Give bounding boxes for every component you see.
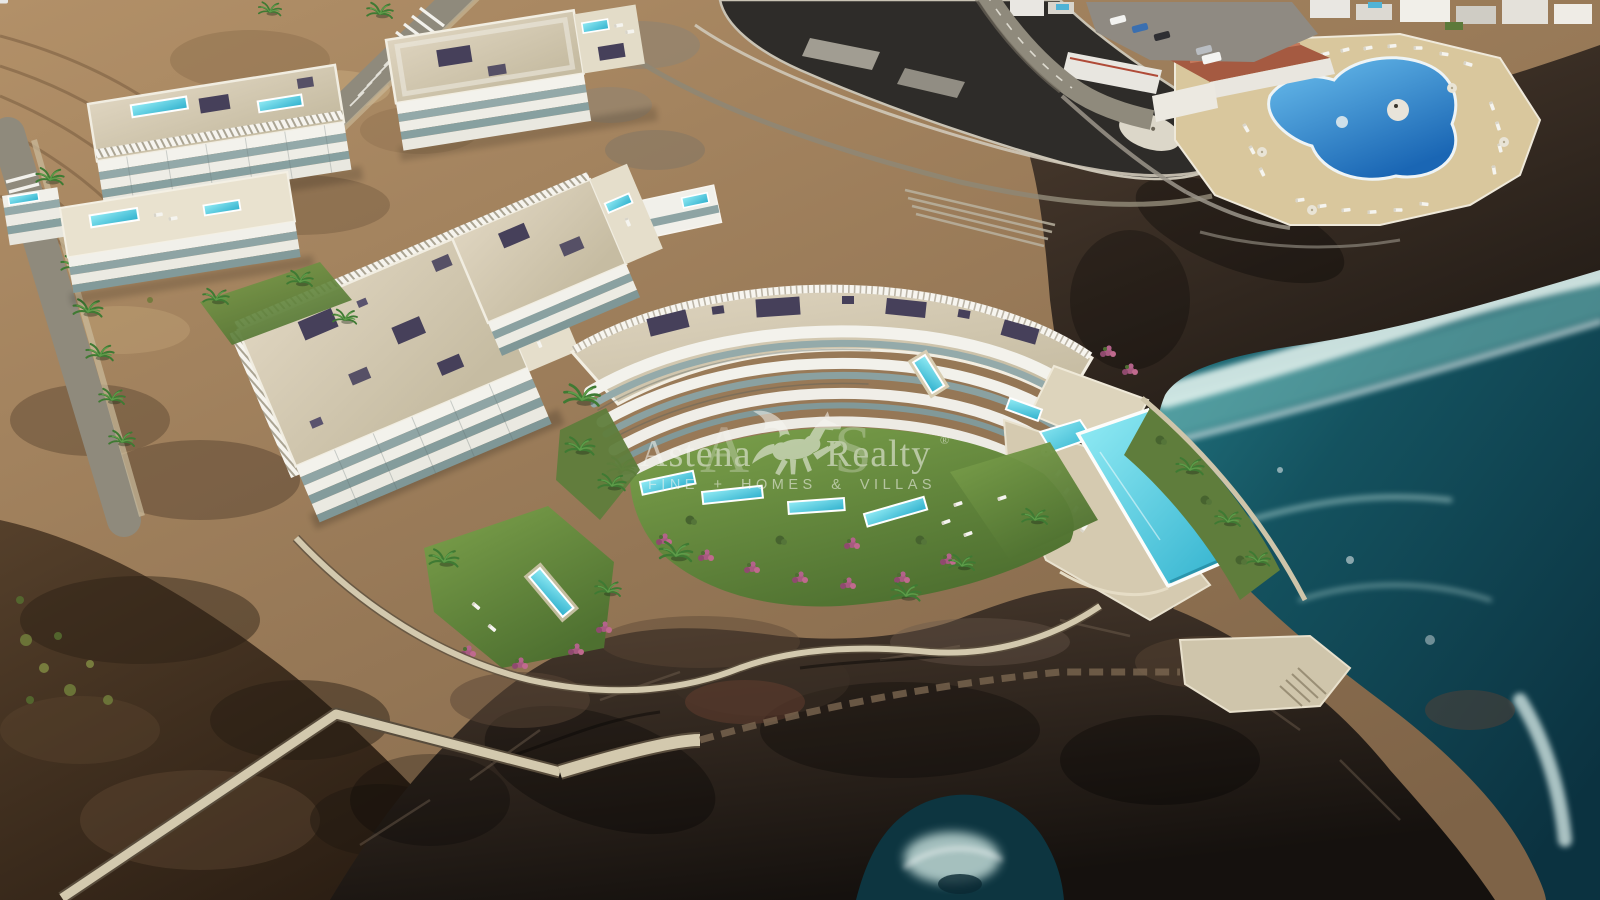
scene-render: A S Astena Realty ® FINE + HOMES & VILLA… <box>0 0 1600 900</box>
pool-island <box>1387 99 1409 121</box>
watermark-brand-left: Astena <box>640 433 752 475</box>
village-pool <box>1056 4 1069 10</box>
watermark-brand-right: Realty <box>826 433 931 475</box>
aerial-render-photo: A S Astena Realty ® FINE + HOMES & VILLA… <box>0 0 1600 900</box>
car <box>0 0 8 4</box>
village-pool <box>1368 2 1382 8</box>
roof-terrace <box>574 5 645 74</box>
watermark-tagline: FINE + HOMES & VILLAS <box>648 477 936 493</box>
apartment-block-edge <box>2 187 65 245</box>
pool-island-figure <box>1394 104 1398 108</box>
registered-trademark: ® <box>940 433 949 447</box>
pool-step <box>1336 116 1348 128</box>
